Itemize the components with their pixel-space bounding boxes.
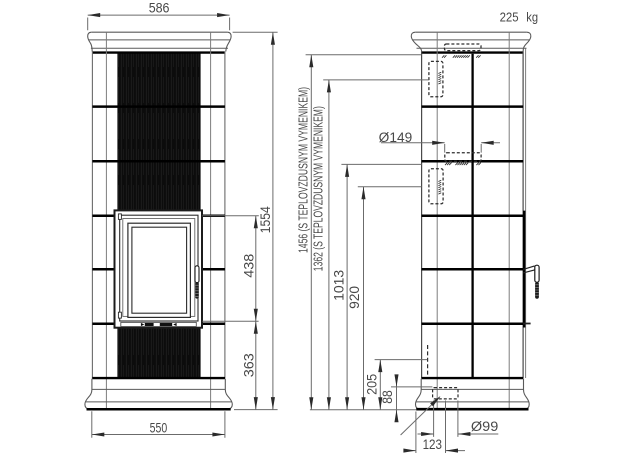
svg-text:1362 (S TEPLOVZDUSNYM VYMENIKE: 1362 (S TEPLOVZDUSNYM VYMENIKEM) xyxy=(311,106,325,271)
svg-text:88: 88 xyxy=(380,390,395,404)
svg-text:920: 920 xyxy=(347,286,362,309)
svg-text:586: 586 xyxy=(149,0,170,16)
svg-text:1456 (S TEPLOVZDUSNYM VYMENIKE: 1456 (S TEPLOVZDUSNYM VYMENIKEM) xyxy=(297,87,311,253)
svg-text:1013: 1013 xyxy=(331,270,346,301)
svg-text:363: 363 xyxy=(241,353,256,377)
svg-text:123: 123 xyxy=(423,437,442,452)
svg-text:438: 438 xyxy=(241,254,256,278)
svg-text:Ø99: Ø99 xyxy=(471,419,498,434)
svg-text:205: 205 xyxy=(365,374,380,395)
svg-text:550: 550 xyxy=(150,420,168,436)
svg-text:Ø149: Ø149 xyxy=(379,130,413,145)
svg-text:kg: kg xyxy=(526,10,538,25)
svg-text:1554: 1554 xyxy=(258,206,273,233)
svg-text:225: 225 xyxy=(500,10,519,25)
